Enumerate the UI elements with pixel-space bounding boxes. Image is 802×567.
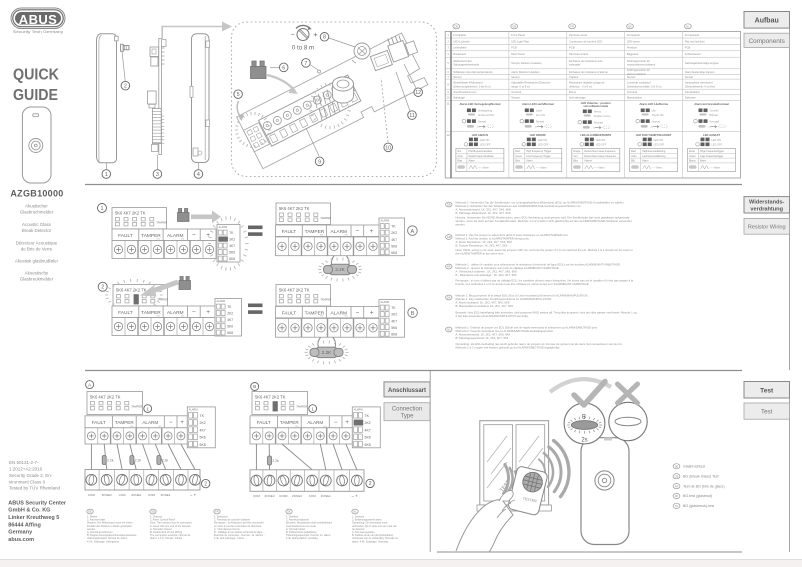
svg-text:ALARM: ALARM xyxy=(354,409,363,412)
svg-text:ALARM: ALARM xyxy=(381,301,390,304)
svg-text:EN 50131-2-7-: EN 50131-2-7- xyxy=(9,460,39,465)
svg-text:86444 Affing: 86444 Affing xyxy=(8,522,41,528)
svg-text:Low Frequency Trigger: Low Frequency Trigger xyxy=(526,155,551,158)
svg-text:+: + xyxy=(180,420,184,426)
svg-text:LED OFF: LED OFF xyxy=(712,144,723,147)
svg-text:Alarm LED Latch/Normal: Alarm LED Latch/Normal xyxy=(522,102,554,106)
svg-text:ALARM: ALARM xyxy=(189,409,198,412)
svg-text:DE: DE xyxy=(447,203,451,207)
svg-text:Position verrou: Position verrou xyxy=(594,115,611,118)
svg-text:Break Detector: Break Detector xyxy=(22,228,52,233)
svg-text:ALARM: ALARM xyxy=(307,420,323,425)
svg-text:FAULT: FAULT xyxy=(282,311,297,317)
svg-text:1: 1 xyxy=(146,406,149,412)
svg-text:TK: TK xyxy=(365,414,370,418)
svg-text:Normaal: Normaal xyxy=(710,120,720,123)
svg-text:TAMPER: TAMPER xyxy=(115,420,134,425)
svg-text:Rot: Rot xyxy=(457,150,461,153)
svg-text:ZONE3: ZONE3 xyxy=(102,493,112,497)
svg-text:Normal: Normal xyxy=(536,120,545,123)
svg-text:B: B xyxy=(582,415,586,421)
svg-text:4K7: 4K7 xyxy=(200,428,206,432)
svg-text:(Erkennungsbereich: 0 bis 8 m): (Erkennungsbereich: 0 bis 8 m) xyxy=(453,84,490,88)
svg-text:ALARM: ALARM xyxy=(219,226,228,229)
svg-text:GmbH & Co. KG: GmbH & Co. KG xyxy=(8,508,50,514)
svg-text:LED OFF: LED OFF xyxy=(480,144,491,147)
svg-text:2K2: 2K2 xyxy=(229,238,235,242)
svg-text:broche. Les méthodes 1 et 2 ne: broche. Les méthodes 1 et 2 ne doivent p… xyxy=(456,282,590,286)
svg-text:Alarme: Alarme xyxy=(584,160,592,163)
svg-text:Connection: Connection xyxy=(392,406,422,412)
svg-text:Hochfrequenzauslöser: Hochfrequenzauslöser xyxy=(468,150,492,153)
svg-text:BG (Break Glass) Test: BG (Break Glass) Test xyxy=(683,474,719,478)
svg-text:ALARM: ALARM xyxy=(381,220,390,223)
svg-text:Acoustic Glass: Acoustic Glass xyxy=(22,222,52,227)
svg-text:5K6 4K7 2K2 TK: 5K6 4K7 2K2 TK xyxy=(279,206,310,211)
svg-text:6K8: 6K8 xyxy=(365,443,371,447)
svg-text:GB: GB xyxy=(447,235,451,239)
svg-text:Verriegelung: Verriegelung xyxy=(478,110,493,113)
svg-text:EOL: EOL xyxy=(181,315,184,317)
svg-text:2: 2 xyxy=(101,285,104,291)
svg-text:sabotage: sabotage xyxy=(569,63,581,67)
svg-text:Panneau avant: Panneau avant xyxy=(569,33,587,37)
svg-text:10: 10 xyxy=(447,96,450,100)
svg-text:Koblingspunkter for: Koblingspunkter for xyxy=(627,59,650,63)
svg-text:B: Tamper Resistance: 1K, 2K2,: B: Tamper Resistance: 1K, 2K2, 4K7, 5K6 xyxy=(456,243,508,247)
svg-text:Einstellbarer Widerstand: Einstellbarer Widerstand xyxy=(453,81,483,85)
svg-text:ABUS: ABUS xyxy=(19,12,57,27)
svg-text:Lavfrekvensudløsning: Lavfrekvensudløsning xyxy=(642,155,666,158)
svg-text:2.2K: 2.2K xyxy=(322,350,332,355)
svg-text:12: 12 xyxy=(446,133,450,137)
svg-text:LED OFF: LED OFF xyxy=(596,144,607,147)
svg-text:Normale: Normale xyxy=(594,121,604,124)
svg-text:Aufbau: Aufbau xyxy=(755,18,779,25)
svg-text:Rouge: Rouge xyxy=(573,150,581,153)
svg-text:the ALARM/TAMPER at the same t: the ALARM/TAMPER at the same time. xyxy=(456,251,505,255)
svg-text:Arm 15s: Arm 15s xyxy=(536,114,546,117)
svg-text:Alarm: Alarm xyxy=(700,160,706,163)
svg-text:Adjustable Resistance (Detecti: Adjustable Resistance (Detection xyxy=(511,81,551,85)
svg-text:TK: TK xyxy=(200,414,205,418)
svg-text:BG (glasbreuk)-test: BG (glasbreuk)-test xyxy=(683,504,714,508)
svg-text:COM: COM xyxy=(309,494,317,498)
svg-text:8: 8 xyxy=(323,35,326,41)
svg-text:5K6: 5K6 xyxy=(365,436,371,440)
svg-text:5K6: 5K6 xyxy=(391,326,397,330)
svg-text:EOL: EOL xyxy=(345,316,348,318)
svg-text:BG-test (glasbrud): BG-test (glasbrud) xyxy=(683,494,712,498)
svg-text:Capteur: Capteur xyxy=(569,75,579,79)
svg-text:Grøn: Grøn xyxy=(631,155,637,158)
svg-text:Alarm: Alarm xyxy=(468,160,474,163)
svg-text:----- Alarm: ----- Alarm xyxy=(710,167,721,170)
svg-text:4K7: 4K7 xyxy=(365,428,371,432)
svg-text:Anschlussklemmen: Anschlussklemmen xyxy=(453,90,477,94)
svg-text:Glasbruchmelder: Glasbruchmelder xyxy=(20,210,54,215)
svg-text:ZONE1: ZONE1 xyxy=(161,493,171,497)
svg-text:B: Manipulationsmodstand: 1K,: B: Manipulationsmodstand: 1K, 2K2, 4K7, … xyxy=(456,304,514,308)
svg-text:ALARM: ALARM xyxy=(142,420,158,425)
svg-text:Rear Panel: Rear Panel xyxy=(511,52,525,56)
svg-text:LED ON: LED ON xyxy=(538,139,548,142)
svg-text:Sabotere: Sabotere xyxy=(685,96,696,100)
svg-text:Security Grade 2, En-: Security Grade 2, En- xyxy=(9,473,53,478)
svg-text:Alarm Resistor Headers: Alarm Resistor Headers xyxy=(511,70,540,74)
svg-text:2.2k: 2.2k xyxy=(162,459,169,463)
svg-text:FAULT: FAULT xyxy=(282,229,297,235)
svg-text:6K8: 6K8 xyxy=(229,257,235,261)
svg-text:6K8: 6K8 xyxy=(391,251,397,255)
svg-text:EOL: EOL xyxy=(320,316,323,318)
svg-text:TAMPER: TAMPER xyxy=(157,298,168,302)
svg-text:LED ON: LED ON xyxy=(654,139,664,142)
svg-text:Verrou: Verrou xyxy=(594,111,602,114)
svg-text:−: − xyxy=(192,309,196,316)
svg-text:Blijf aan: Blijf aan xyxy=(710,114,720,117)
svg-text:Conducteur de lumière LED: Conducteur de lumière LED xyxy=(569,39,602,43)
svg-text:−: − xyxy=(192,232,196,239)
svg-text:Manipulation: Manipulation xyxy=(627,96,643,100)
svg-text:PCB: PCB xyxy=(685,46,691,50)
svg-text:Sensor: Sensor xyxy=(685,75,694,79)
svg-text:5K6: 5K6 xyxy=(229,251,235,255)
svg-text:LED ON: LED ON xyxy=(480,139,490,142)
svg-text:alarm: 4,4k, Sabotage: Oneindi: alarm: 4,4k, Sabotage: Oneindig xyxy=(352,540,388,543)
svg-text:Widerstand des: Widerstand des xyxy=(453,59,472,63)
svg-text:détection : 0 à 8 m): détection : 0 à 8 m) xyxy=(569,84,592,88)
svg-text:+: + xyxy=(313,30,318,39)
svg-text:Rood: Rood xyxy=(689,150,695,153)
svg-text:B: Sabotageweerstand: 1K, 2K2,: B: Sabotageweerstand: 1K, 2K2, 4K7, 5K6 xyxy=(456,336,509,340)
svg-text:Résistance réglable (plage de: Résistance réglable (plage de xyxy=(569,81,605,85)
svg-text:Security Tech Germany: Security Tech Germany xyxy=(13,30,63,34)
svg-text:5K6 4K7 2K2 TK: 5K6 4K7 2K2 TK xyxy=(115,210,146,215)
svg-text:AZGB10000: AZGB10000 xyxy=(10,189,63,199)
svg-text:Green: Green xyxy=(515,155,522,158)
svg-text:Anschlussart: Anschlussart xyxy=(388,388,426,394)
svg-text:DK: DK xyxy=(675,494,679,498)
svg-text:ALARM: ALARM xyxy=(217,300,226,303)
svg-text:LED FOR TÆNDT/SLUKKET: LED FOR TÆNDT/SLUKKET xyxy=(636,133,672,137)
svg-text:werden.: werden. xyxy=(456,222,466,226)
svg-text:Frontpaneel: Frontpaneel xyxy=(685,33,700,37)
svg-text:manipulationsmodstand: manipulationsmodstand xyxy=(627,63,656,67)
svg-text:Sabotagebestendige koppen: Sabotagebestendige koppen xyxy=(685,61,720,65)
svg-text:Armierend 15s: Armierend 15s xyxy=(478,114,495,117)
svg-text:Lage frequentietrigger: Lage frequentietrigger xyxy=(700,155,724,158)
svg-text:Embases de résistance anti-: Embases de résistance anti- xyxy=(569,59,603,63)
svg-text:5K6: 5K6 xyxy=(200,436,206,440)
svg-text:2K2: 2K2 xyxy=(391,231,397,235)
svg-text:Methode 1 & 2 mogen niet worde: Methode 1 & 2 mogen niet worden gebruikt… xyxy=(456,345,561,349)
svg-text:Glasbruchtest: Glasbruchtest xyxy=(683,465,705,469)
svg-text:Akoestische: Akoestische xyxy=(25,271,49,276)
svg-text:6K8: 6K8 xyxy=(200,443,206,447)
svg-text:Tændt 15s: Tændt 15s xyxy=(652,114,665,117)
svg-text:NL: NL xyxy=(447,328,451,332)
svg-text:GUIDE: GUIDE xyxy=(13,87,58,104)
svg-text:5: 5 xyxy=(237,92,240,98)
svg-text:EOL: EOL xyxy=(181,238,184,240)
svg-text:Leiterplatte: Leiterplatte xyxy=(453,46,467,50)
svg-text:Sensor: Sensor xyxy=(453,75,462,79)
svg-text:FAULT: FAULT xyxy=(92,420,106,425)
svg-text:FR: FR xyxy=(215,510,219,514)
svg-text:Test de BG (bris de glace): Test de BG (bris de glace) xyxy=(683,484,725,488)
svg-text:FAULT: FAULT xyxy=(118,233,133,239)
svg-text:Koblingspunkter for: Koblingspunkter for xyxy=(627,68,650,72)
svg-text:5K6 4K7 2K2 TK: 5K6 4K7 2K2 TK xyxy=(279,287,310,292)
svg-text:Alarm: 4,4 K, Tamper: Infinite: Alarm: 4,4 K, Tamper: Infinite xyxy=(150,537,183,540)
svg-text:GB: GB xyxy=(151,510,155,514)
svg-text:LED AAN/UIT: LED AAN/UIT xyxy=(703,133,720,137)
svg-text:2 bør ikke anvendes på ALARM/M: 2 bør ikke anvendes på ALARM/MANIPULATIO… xyxy=(456,314,529,318)
svg-text:9: 9 xyxy=(318,159,321,165)
svg-text:10: 10 xyxy=(385,145,391,151)
svg-text:----- Alarm: ----- Alarm xyxy=(652,167,663,170)
svg-text:Rød: Rød xyxy=(631,150,636,153)
svg-text:12: 12 xyxy=(415,90,421,96)
svg-text:Akustischer: Akustischer xyxy=(25,204,48,209)
svg-text:Embases de résistance d'alarme: Embases de résistance d'alarme xyxy=(569,70,608,74)
svg-text:Glasbreukmelder: Glasbreukmelder xyxy=(20,277,54,282)
svg-text:PCB: PCB xyxy=(511,46,517,50)
svg-text:FR: FR xyxy=(447,265,451,269)
svg-text:1: 1 xyxy=(101,206,104,212)
svg-text:1: 1 xyxy=(105,172,108,178)
svg-text:Normal: Normal xyxy=(652,120,661,123)
svg-text:LED ON: LED ON xyxy=(712,139,722,142)
svg-text:−: − xyxy=(355,310,359,317)
svg-text:werden, wenn sie nicht auf den: werden, wenn sie nicht auf den Kontaktst… xyxy=(456,219,632,223)
svg-text:Bleu: Bleu xyxy=(573,160,578,163)
svg-text:A: A xyxy=(411,229,415,235)
svg-text:EOL: EOL xyxy=(345,234,348,236)
svg-text:FR: FR xyxy=(570,25,574,29)
svg-text:−: − xyxy=(334,420,338,426)
svg-text:11: 11 xyxy=(447,102,450,106)
svg-text:Blue: Blue xyxy=(515,160,520,163)
svg-text:TAMPER: TAMPER xyxy=(131,405,142,409)
svg-text:Linker Kreuthweg 5: Linker Kreuthweg 5 xyxy=(8,515,59,521)
svg-text:3: 3 xyxy=(156,172,159,178)
svg-text:GB: GB xyxy=(512,25,516,29)
svg-text:TAMPER: TAMPER xyxy=(320,216,331,220)
svg-text:Terminal: Terminal xyxy=(627,90,638,94)
svg-text:EOL: EOL xyxy=(320,234,323,236)
svg-text:Akustisk glasbrudføler: Akustisk glasbrudføler xyxy=(15,258,59,263)
svg-text:Rückwand: Rückwand xyxy=(453,52,466,56)
svg-text:EOL: EOL xyxy=(157,238,160,240)
svg-text:Tested by TÜV Rheinland: Tested by TÜV Rheinland xyxy=(9,485,60,491)
svg-text:Tamper Resistor Headers: Tamper Resistor Headers xyxy=(511,61,542,65)
svg-text:5K6: 5K6 xyxy=(227,325,233,329)
svg-text:Alarm-led Grendel/normaal: Alarm-led Grendel/normaal xyxy=(694,102,729,106)
svg-text:----- Alarm: ----- Alarm xyxy=(594,167,605,170)
svg-text:Printkort: Printkort xyxy=(627,46,637,50)
svg-text:verdrahtung: verdrahtung xyxy=(750,206,783,212)
svg-text:ZONE2: ZONE2 xyxy=(292,494,302,498)
svg-text:− +: − + xyxy=(190,493,197,498)
svg-text:Panneau arrière: Panneau arrière xyxy=(569,52,589,56)
svg-text:de Bris de Verre: de Bris de Verre xyxy=(21,246,53,251)
svg-text:Components: Components xyxy=(749,38,785,45)
svg-text:+: + xyxy=(206,309,210,316)
svg-text:−: − xyxy=(355,228,359,235)
svg-text:2: 2 xyxy=(369,481,372,487)
svg-text:6K8: 6K8 xyxy=(391,332,397,336)
svg-text:DK: DK xyxy=(628,25,632,29)
svg-text:TAMPER: TAMPER xyxy=(156,221,167,225)
svg-text:4K7: 4K7 xyxy=(227,318,233,322)
svg-text:5K6 4K7 2K2 TK: 5K6 4K7 2K2 TK xyxy=(116,287,147,292)
svg-text:Hoge frequentietrigger: Hoge frequentietrigger xyxy=(700,150,724,153)
svg-text:B : Résistance anti-sabotage :: B : Résistance anti-sabotage : 1K, 2K2, … xyxy=(456,273,518,277)
svg-text:4K7: 4K7 xyxy=(229,244,235,248)
svg-text:Test: Test xyxy=(761,409,773,416)
svg-text:DK: DK xyxy=(447,296,451,300)
svg-text:Déclencheur haute fréquence: Déclencheur haute fréquence xyxy=(584,150,616,153)
svg-text:TAMPER: TAMPER xyxy=(280,420,299,425)
svg-text:GB: GB xyxy=(675,474,679,478)
svg-text:Sabotage: Sabotage xyxy=(453,96,465,100)
svg-text:QUICK: QUICK xyxy=(13,67,59,84)
svg-text:+: + xyxy=(345,420,349,426)
svg-text:2.2k: 2.2k xyxy=(135,459,142,463)
svg-text:LED OFF: LED OFF xyxy=(538,144,549,147)
svg-text:NL: NL xyxy=(353,510,357,514)
svg-text:+: + xyxy=(206,232,210,239)
svg-text:COM: COM xyxy=(88,493,96,497)
svg-text:Détecteur Acoustique: Détecteur Acoustique xyxy=(16,240,58,245)
svg-text:Stiftleisten des Alarmwidersta: Stiftleisten des Alarmwiderstands xyxy=(453,70,493,74)
svg-text:2: 2 xyxy=(124,84,127,90)
svg-text:Germany: Germany xyxy=(8,530,33,536)
svg-text:COM: COM xyxy=(148,493,156,497)
svg-text:COM: COM xyxy=(119,493,127,497)
svg-text:Niederfrequenzauslöser: Niederfrequenzauslöser xyxy=(468,155,494,158)
svg-text:Alarm-LED Lås/Norma: Alarm-LED Lås/Norma xyxy=(639,102,668,106)
svg-text:LED Light Pipe: LED Light Pipe xyxy=(511,39,529,43)
svg-text:High Frequency Trigger: High Frequency Trigger xyxy=(526,150,551,153)
svg-text:−: − xyxy=(169,420,173,426)
svg-text:LED OFF: LED OFF xyxy=(654,144,665,147)
svg-text:COM: COM xyxy=(253,494,261,498)
svg-text:COM2: COM2 xyxy=(279,494,288,498)
svg-text:5K6 4K7 2K2 TK: 5K6 4K7 2K2 TK xyxy=(255,394,286,399)
svg-text:4: 4 xyxy=(197,172,200,178)
svg-text:Blauw: Blauw xyxy=(689,160,696,163)
svg-text:DK: DK xyxy=(287,510,291,514)
svg-text:+: + xyxy=(370,310,374,317)
svg-text:Test: Test xyxy=(760,387,774,394)
svg-text:− +: − + xyxy=(351,494,358,499)
svg-text:Déclencheur basse fréquence: Déclencheur basse fréquence xyxy=(584,155,616,158)
svg-text:ZONE3: ZONE3 xyxy=(264,494,274,498)
svg-text:Vert: Vert xyxy=(573,155,578,158)
svg-text:Højfrekvensudløsning: Højfrekvensudløsning xyxy=(642,150,666,153)
svg-text:4K7: 4K7 xyxy=(391,319,397,323)
svg-text:----- Alarm: ----- Alarm xyxy=(478,167,489,170)
svg-text:----- Alarm: ----- Alarm xyxy=(536,167,547,170)
svg-text:1:2012+A2:2016: 1:2012+A2:2016 xyxy=(9,467,43,472)
svg-text:Bagpanel: Bagpanel xyxy=(627,52,639,56)
svg-text:Pijp met led-licht: Pijp met led-licht xyxy=(685,39,705,43)
svg-text:5K6 4K7 2K2 TK: 5K6 4K7 2K2 TK xyxy=(90,394,121,399)
svg-text:B: B xyxy=(411,311,415,317)
svg-text:Frontpanel: Frontpanel xyxy=(627,33,640,37)
svg-text:Normal: Normal xyxy=(478,120,487,123)
svg-text:Borne: Borne xyxy=(569,90,577,94)
svg-text:ZONE1: ZONE1 xyxy=(321,494,331,498)
svg-text:LED ON: LED ON xyxy=(596,139,606,142)
svg-text:Sensor: Sensor xyxy=(627,75,636,79)
svg-text:1: 1 xyxy=(311,406,314,412)
svg-text:FAULT: FAULT xyxy=(257,420,271,425)
svg-text:Type: Type xyxy=(400,414,414,420)
svg-text:FR: FR xyxy=(675,484,679,488)
svg-text:Alarm: Alarm xyxy=(642,160,648,163)
svg-text:4,4k, Manipulation: Uendelig: 4,4k, Manipulation: Uendelig xyxy=(286,537,318,540)
svg-text:Terminal: Terminal xyxy=(511,90,522,94)
svg-text:2K2: 2K2 xyxy=(391,313,397,317)
svg-text:7: 7 xyxy=(304,61,307,67)
svg-text:PCB: PCB xyxy=(569,46,575,50)
svg-text:Frontplatte: Frontplatte xyxy=(453,33,466,37)
svg-text:2K2: 2K2 xyxy=(200,421,206,425)
svg-text:Tamper: Tamper xyxy=(511,96,520,100)
svg-text:range: 0 to 8 m): range: 0 to 8 m) xyxy=(511,84,530,88)
svg-text:Achterpaneel: Achterpaneel xyxy=(685,52,701,56)
svg-text:Alarmbestendige koppen: Alarmbestendige koppen xyxy=(685,70,715,74)
svg-text:ZONE2: ZONE2 xyxy=(131,493,141,497)
svg-text:2.2k: 2.2k xyxy=(272,459,279,463)
svg-text:Sabotagewiderstands: Sabotagewiderstands xyxy=(453,63,480,67)
svg-text:+: + xyxy=(370,228,374,235)
svg-text:B: Sabotage-Widerstand: 1K, 2K: B: Sabotage-Widerstand: 1K, 2K2, 4K7, 5K… xyxy=(456,211,511,215)
svg-text:4K7: 4K7 xyxy=(391,238,397,242)
svg-text:(Detektionsområde: 0 til 8 m): (Detektionsområde: 0 til 8 m) xyxy=(627,84,662,88)
svg-text:NL: NL xyxy=(686,25,690,29)
svg-text:abus.com: abus.com xyxy=(8,537,34,543)
svg-text:11: 11 xyxy=(409,113,415,119)
svg-text:2.2k: 2.2k xyxy=(107,459,114,463)
svg-text:2K2: 2K2 xyxy=(227,312,233,316)
svg-text:FAULT: FAULT xyxy=(118,310,133,316)
svg-text:NL: NL xyxy=(675,504,679,508)
svg-text:Justerbar modstand: Justerbar modstand xyxy=(627,81,651,85)
svg-text:2.2K: 2.2K xyxy=(335,267,345,272)
svg-text:Aansluitklem: Aansluitklem xyxy=(685,90,701,94)
svg-text:DE: DE xyxy=(88,510,92,514)
svg-text:TAMPER: TAMPER xyxy=(320,298,331,302)
svg-text:LED-Lichtrohr: LED-Lichtrohr xyxy=(453,39,470,43)
svg-text:EOL: EOL xyxy=(157,315,160,317)
svg-text:Anti-sabotage: Anti-sabotage xyxy=(569,96,586,100)
svg-text:2s: 2s xyxy=(581,438,587,444)
svg-text:Groen: Groen xyxy=(689,155,696,158)
svg-text:(Detectiebereik: 0 tot 8m): (Detectiebereik: 0 tot 8m) xyxy=(685,84,715,88)
svg-text:Resistor Wiring: Resistor Wiring xyxy=(748,225,786,231)
svg-text:4,4 k, Sabotage: Unbegrenzt: 4,4 k, Sabotage: Unbegrenzt xyxy=(87,540,119,543)
svg-text:2K2: 2K2 xyxy=(365,421,371,425)
svg-text:6K8: 6K8 xyxy=(227,331,233,335)
svg-text:Alarm: Alarm xyxy=(526,160,532,163)
svg-text:LED AN/AUS: LED AN/AUS xyxy=(472,133,489,137)
svg-text:Grendel: Grendel xyxy=(710,110,719,113)
